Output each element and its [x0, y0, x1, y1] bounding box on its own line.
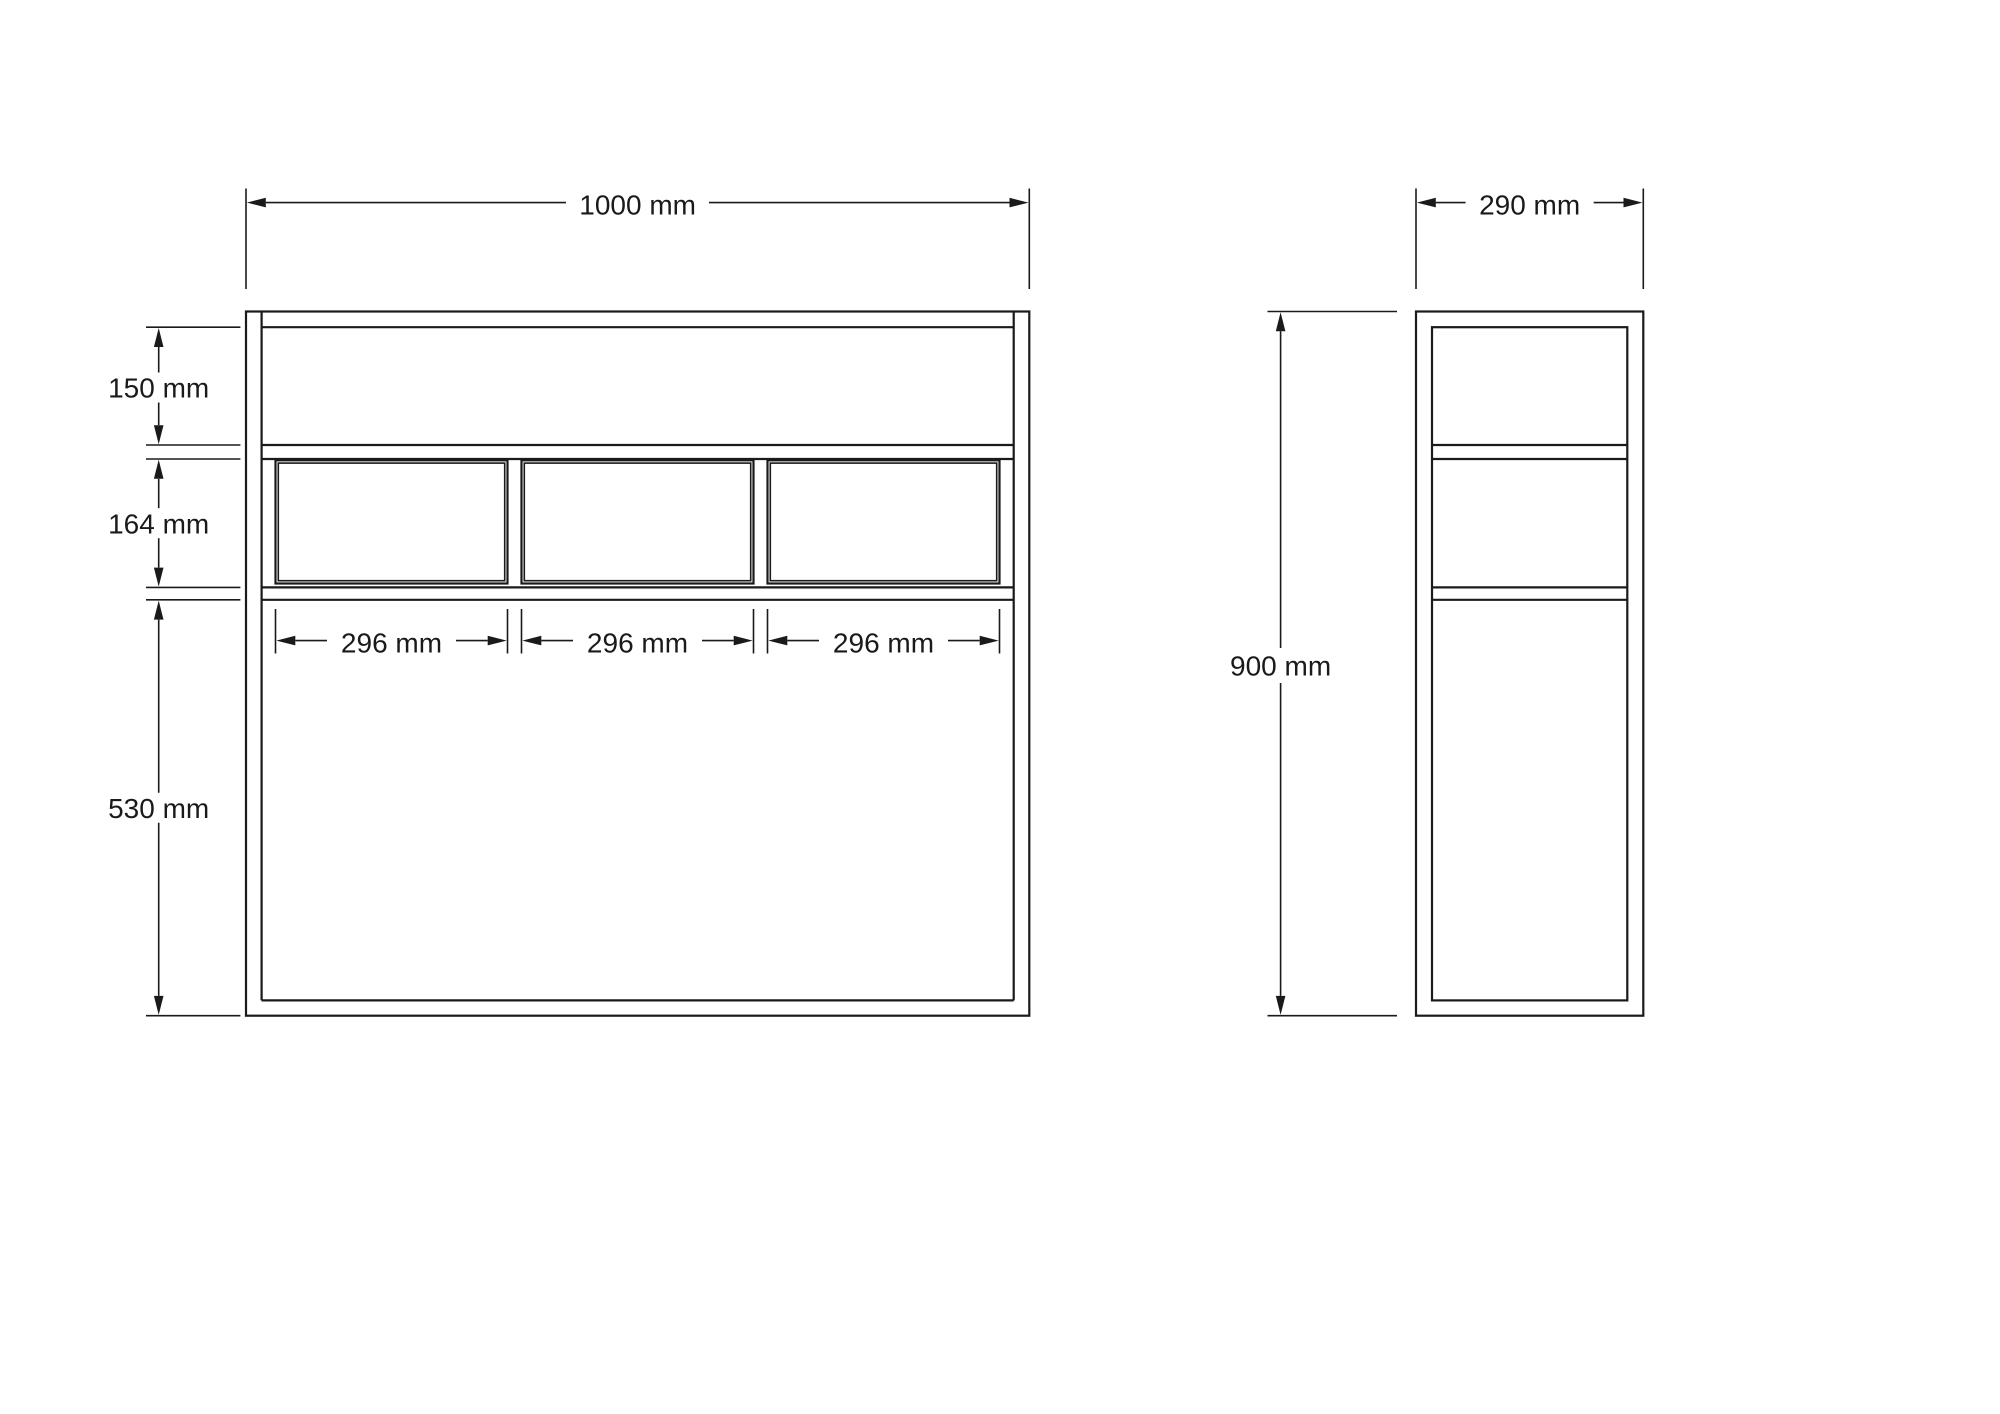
svg-text:164 mm: 164 mm: [108, 508, 209, 539]
svg-text:296 mm: 296 mm: [833, 628, 934, 659]
svg-text:296 mm: 296 mm: [341, 628, 442, 659]
svg-text:530 mm: 530 mm: [108, 793, 209, 824]
svg-text:900 mm: 900 mm: [1230, 651, 1331, 682]
svg-text:290 mm: 290 mm: [1479, 190, 1580, 221]
svg-text:296 mm: 296 mm: [587, 628, 688, 659]
svg-text:150 mm: 150 mm: [108, 373, 209, 404]
svg-text:1000 mm: 1000 mm: [579, 190, 696, 221]
